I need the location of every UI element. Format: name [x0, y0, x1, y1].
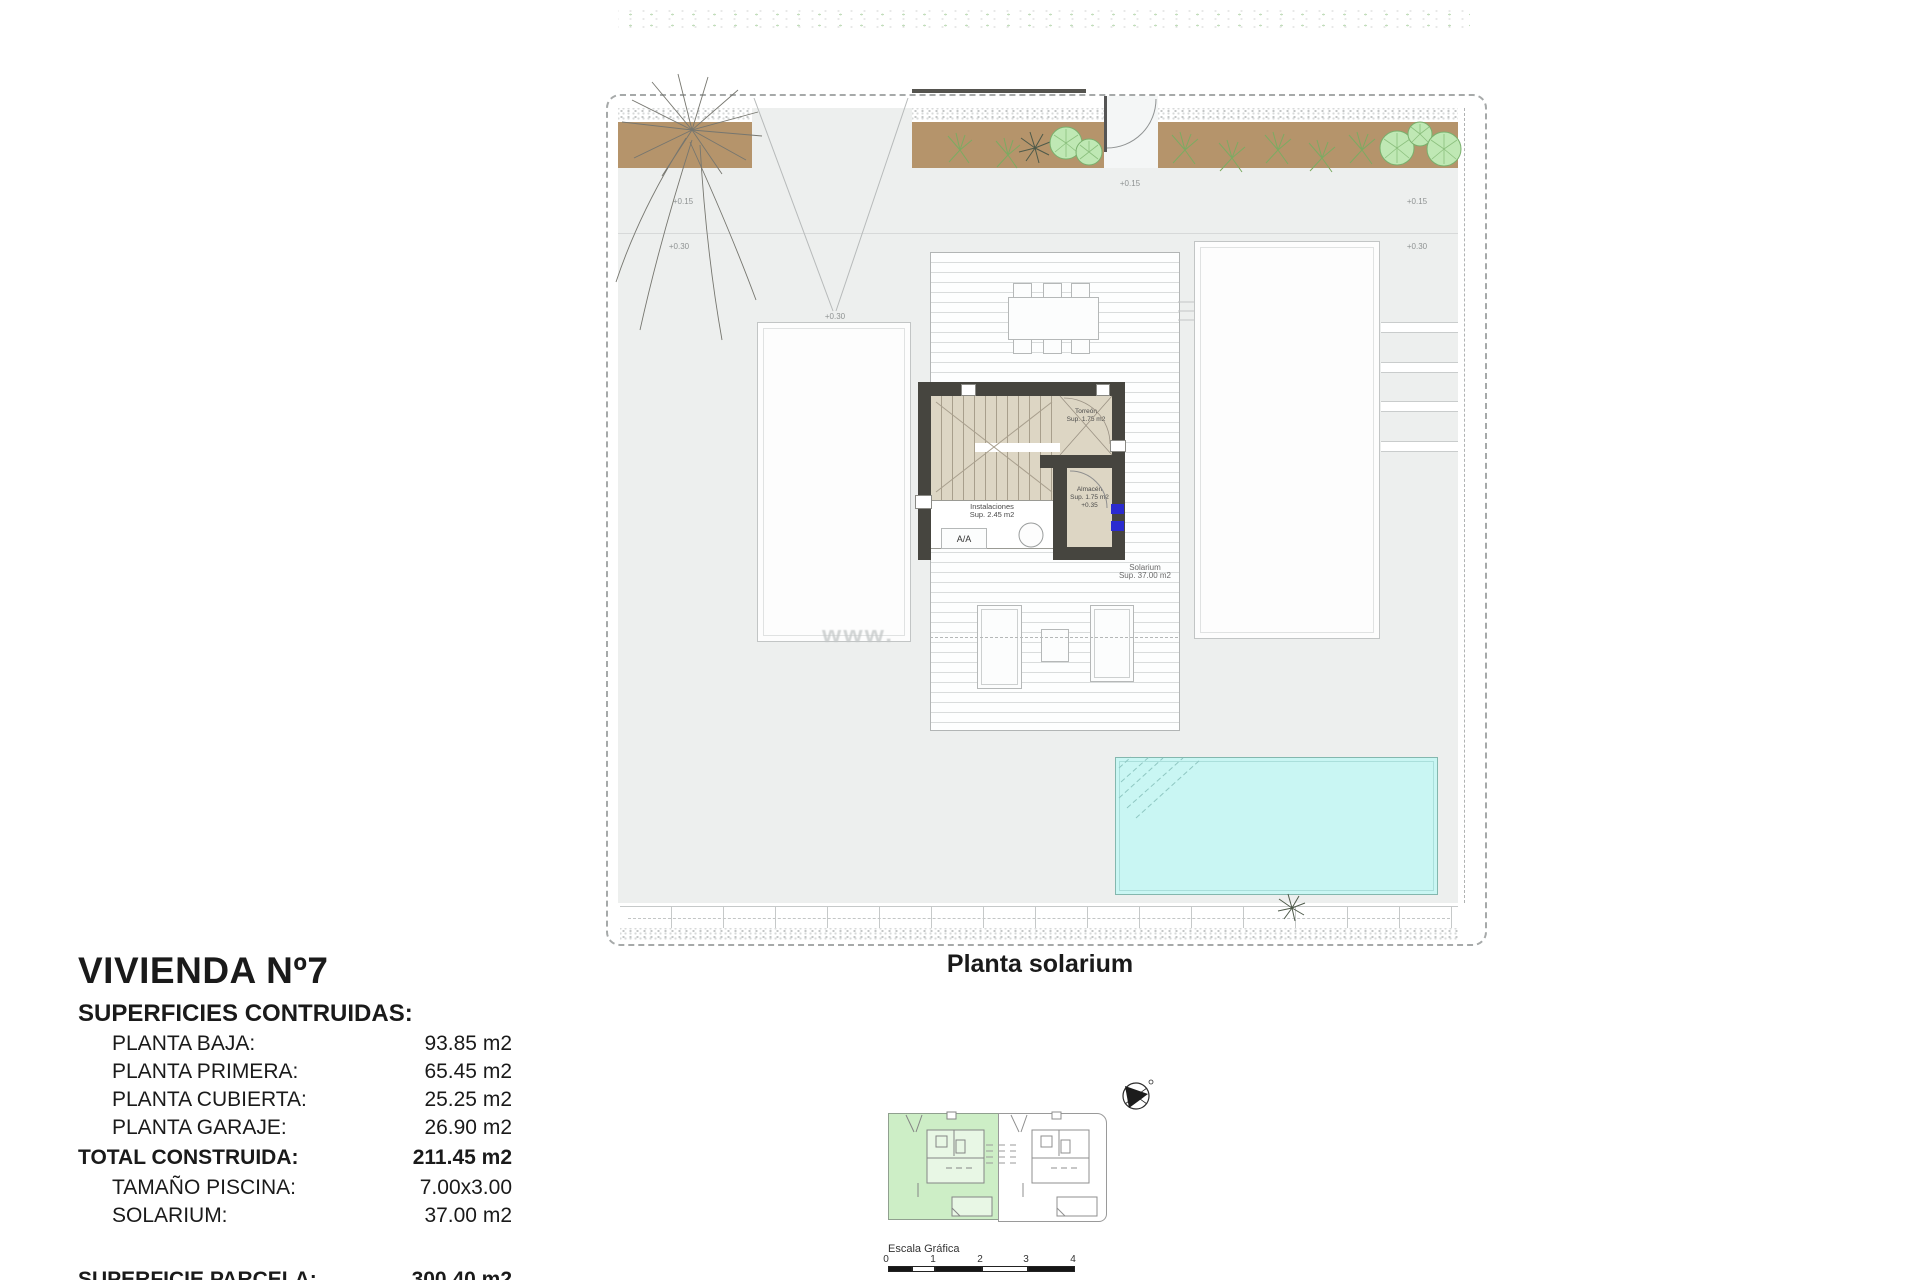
level-label: +0.15: [1113, 179, 1147, 188]
surface-label: PLANTA BAJA:: [78, 1032, 255, 1056]
title-block-subtitle: SUPERFICIES CONTRUIDAS:: [78, 1000, 413, 1028]
surface-label: SOLARIUM:: [78, 1204, 228, 1228]
parcel-row: SUPERFICIE PARCELA: 300.40 m2: [78, 1268, 512, 1280]
surface-value: 37.00 m2: [424, 1204, 512, 1228]
scale-tick: 1: [928, 1254, 938, 1265]
level-label: +0.30: [662, 242, 696, 251]
plan-caption: Planta solarium: [890, 950, 1190, 979]
surface-label: PLANTA CUBIERTA:: [78, 1088, 307, 1112]
surface-row: PLANTA GARAJE: 26.90 m2: [78, 1116, 512, 1140]
surface-label: TOTAL CONSTRUIDA:: [78, 1146, 299, 1170]
keyplan-plot-neighbour: [998, 1113, 1107, 1222]
surface-total-row: TOTAL CONSTRUIDA: 211.45 m2: [78, 1146, 512, 1170]
surface-value: 26.90 m2: [424, 1116, 512, 1140]
street-vegetation-band: [618, 6, 1470, 28]
surface-label: TAMAÑO PISCINA:: [78, 1176, 296, 1200]
scale-tick: 4: [1068, 1254, 1078, 1265]
watermark: www.: [822, 622, 1057, 648]
surface-value: 93.85 m2: [424, 1032, 512, 1056]
keyplan-plot-highlighted: [888, 1113, 1000, 1220]
level-label: +0.30: [1400, 242, 1434, 251]
scale-tick: 3: [1021, 1254, 1031, 1265]
surface-value: 300.40 m2: [412, 1268, 512, 1280]
level-label: +0.15: [666, 197, 700, 206]
surface-row: PLANTA PRIMERA: 65.45 m2: [78, 1060, 512, 1084]
surface-value: 65.45 m2: [424, 1060, 512, 1084]
surface-label: PLANTA PRIMERA:: [78, 1060, 298, 1084]
scale-bar: [888, 1266, 1075, 1272]
north-arrow-icon: [1123, 1080, 1153, 1109]
scale-bar-label: Escala Gráfica: [888, 1243, 960, 1255]
surface-row: PLANTA CUBIERTA: 25.25 m2: [78, 1088, 512, 1112]
plan-sheet: A/A Torreón Sup. 1.75 m2 Almacén Sup. 1.…: [0, 0, 1920, 1280]
level-label: +0.15: [1400, 197, 1434, 206]
surface-row: PLANTA BAJA: 93.85 m2: [78, 1032, 512, 1056]
surface-row: SOLARIUM: 37.00 m2: [78, 1204, 512, 1228]
scale-tick: 2: [975, 1254, 985, 1265]
surface-label: PLANTA GARAJE:: [78, 1116, 287, 1140]
surface-value: 211.45 m2: [413, 1146, 512, 1170]
surface-value: 25.25 m2: [424, 1088, 512, 1112]
plot-boundary: [606, 94, 1487, 946]
surface-label: SUPERFICIE PARCELA:: [78, 1268, 317, 1280]
scale-tick: 0: [881, 1254, 891, 1265]
street-wall: [912, 89, 1086, 93]
surface-row: TAMAÑO PISCINA: 7.00x3.00: [78, 1176, 512, 1200]
title-block-title: VIVIENDA Nº7: [78, 950, 328, 992]
level-label: +0.30: [818, 312, 852, 321]
surface-value: 7.00x3.00: [420, 1176, 512, 1200]
